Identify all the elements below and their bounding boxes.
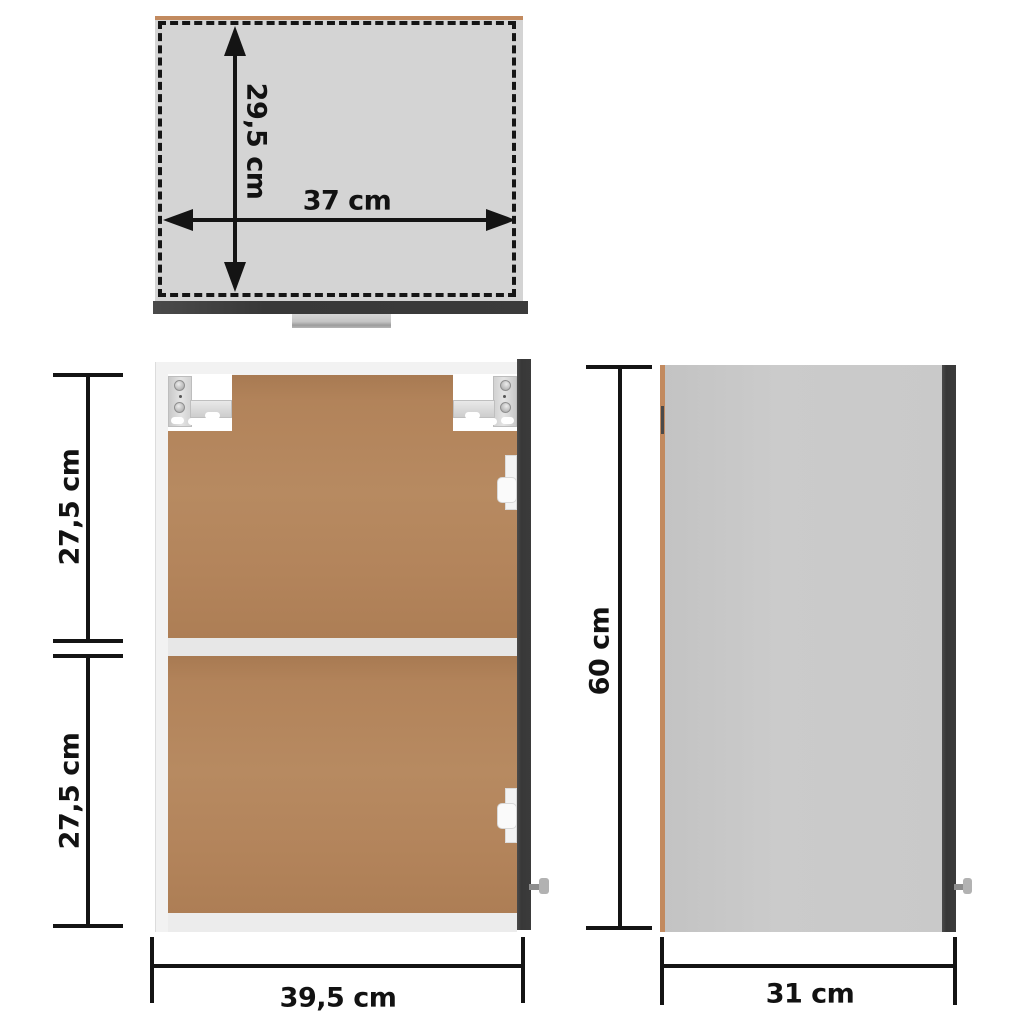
bracket-slot — [205, 412, 220, 419]
bracket-screw-icon — [500, 402, 511, 413]
dim-tick — [53, 373, 123, 377]
bracket-slot — [465, 412, 480, 419]
dim-tick — [953, 937, 957, 1005]
bracket-screw-icon — [500, 380, 511, 391]
dim-tick — [150, 937, 154, 1003]
side-depth-dim-line — [662, 964, 957, 968]
bracket-screw-icon — [174, 402, 185, 413]
bracket-slot — [171, 417, 184, 424]
bracket-pin-icon — [503, 395, 506, 398]
dim-tick — [660, 937, 664, 1005]
front-lower-dim-line — [86, 658, 90, 924]
side-height-dim-line — [618, 367, 622, 928]
front-door-handle — [539, 878, 549, 894]
wall-bracket-right — [453, 374, 517, 431]
width-arrow-line — [185, 218, 489, 222]
front-door-edge — [517, 359, 531, 930]
front-width-dim-line — [152, 964, 525, 968]
product-dimension-diagram: 29,5 cm 37 cm — [0, 0, 1024, 1024]
side-height-label: 60 cm — [585, 607, 616, 696]
front-upper-height-label: 27,5 cm — [55, 449, 86, 566]
top-view-door-handle — [292, 314, 391, 328]
top-depth-label: 29,5 cm — [241, 83, 272, 200]
width-arrowhead-left-icon — [163, 209, 193, 231]
side-door-edge — [942, 365, 956, 932]
bracket-slot — [501, 417, 514, 424]
side-bracket-mark — [661, 406, 664, 434]
dim-tick — [521, 937, 525, 1003]
front-width-label: 39,5 cm — [280, 983, 397, 1014]
bracket-pin-icon — [179, 395, 182, 398]
depth-arrowhead-top-icon — [224, 26, 246, 56]
hinge-bottom-cup — [497, 803, 517, 829]
front-upper-dim-line — [86, 375, 90, 639]
depth-arrowhead-bottom-icon — [224, 262, 246, 292]
bracket-slot — [482, 418, 497, 425]
bottom-band — [168, 913, 517, 932]
bracket-slot — [188, 418, 203, 425]
top-view-door-edge — [153, 301, 528, 314]
width-arrowhead-right-icon — [486, 209, 516, 231]
hinge-top-cup — [497, 477, 517, 503]
dim-tick — [53, 654, 123, 658]
shelf-band — [168, 638, 517, 656]
side-panel — [665, 365, 942, 932]
side-depth-label: 31 cm — [766, 979, 855, 1010]
back-panel-lower — [168, 656, 517, 913]
bracket-screw-icon — [174, 380, 185, 391]
dim-tick — [586, 926, 652, 930]
top-width-label: 37 cm — [303, 186, 392, 217]
depth-arrow-line — [233, 40, 237, 270]
dim-tick — [53, 639, 123, 643]
top-view-dashed-outline — [158, 21, 516, 297]
dim-tick — [53, 924, 123, 928]
side-door-handle — [963, 878, 972, 894]
wall-bracket-left — [168, 374, 232, 431]
front-lower-height-label: 27,5 cm — [55, 733, 86, 850]
dim-tick — [586, 365, 652, 369]
